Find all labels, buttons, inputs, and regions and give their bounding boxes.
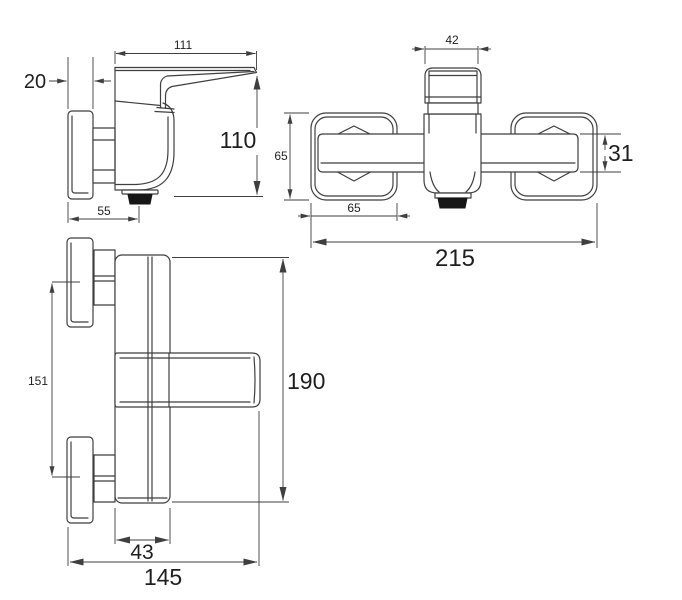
hex-nut-top	[94, 250, 115, 305]
dim-20-label: 20	[24, 71, 46, 93]
front-view: 42 65 31 65 215	[274, 33, 633, 272]
dim-43-label: 43	[130, 541, 153, 564]
spout-step	[122, 190, 158, 194]
dim-190-label: 190	[287, 368, 325, 394]
plan-view: 151 190 43 145	[28, 238, 325, 590]
lever-plan	[115, 353, 260, 407]
dim-215-label: 215	[435, 245, 475, 272]
dim-65v-label: 65	[274, 149, 288, 163]
dim-20-extension-lines	[68, 57, 93, 109]
outlet-step	[435, 193, 471, 198]
dim-145-label: 145	[144, 564, 182, 590]
dim-43-extension-lines	[115, 508, 170, 544]
aerator	[128, 195, 152, 205]
lever-cap-bottom-edge	[115, 101, 161, 106]
mixer-body-inner-contour	[115, 117, 168, 185]
hex-nut	[93, 128, 115, 183]
hex-nut-bottom	[94, 455, 115, 502]
drawing-canvas: 111 20 110 55 42	[0, 0, 682, 600]
mixer-body	[115, 68, 174, 191]
dim-55-label: 55	[97, 204, 111, 218]
aerator-front	[438, 198, 467, 208]
lever-handle	[161, 68, 257, 109]
side-view: 111 20 110 55	[24, 38, 263, 223]
handle-stem	[428, 103, 478, 114]
dim-65h-label: 65	[347, 201, 361, 215]
dim-110-label: 110	[220, 127, 257, 153]
dim-65v-extension-lines	[284, 113, 309, 200]
lever-cap-top	[115, 68, 254, 71]
dim-111-label: 111	[174, 38, 193, 52]
dim-151-label: 151	[28, 374, 48, 388]
dim-42-label: 42	[445, 33, 459, 47]
dim-31-label: 31	[608, 140, 634, 166]
technical-drawing: 111 20 110 55 42	[0, 0, 682, 600]
dim-42-extension-lines	[425, 46, 478, 64]
handle-back	[425, 68, 481, 103]
